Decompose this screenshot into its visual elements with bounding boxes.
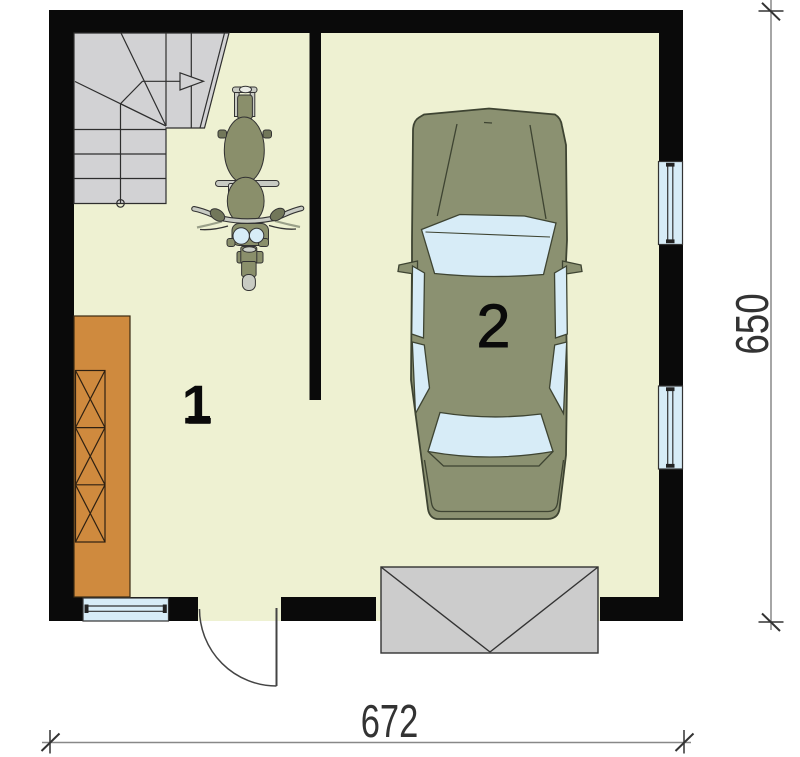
svg-text:2: 2 — [477, 292, 511, 360]
svg-text:672: 672 — [361, 695, 419, 747]
svg-text:650: 650 — [726, 293, 778, 354]
svg-text:1: 1 — [182, 374, 213, 436]
